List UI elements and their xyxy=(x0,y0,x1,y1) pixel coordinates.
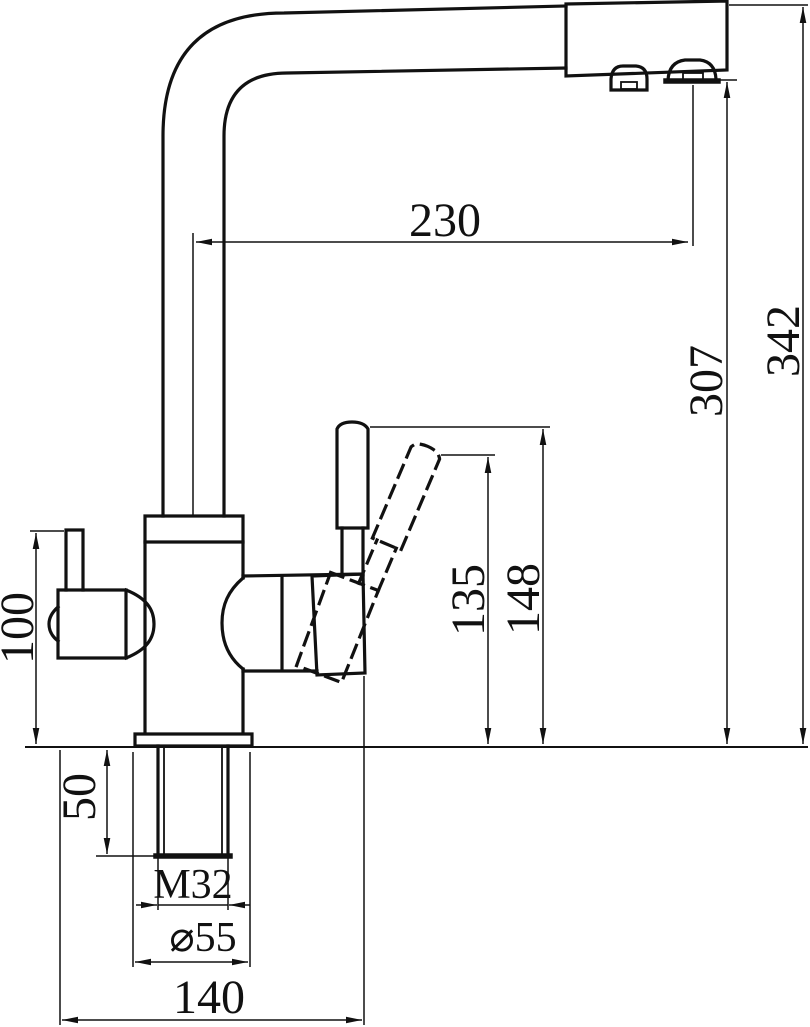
faucet-dimension-drawing: 230 342 307 148 135 100 50 M3 xyxy=(0,0,810,1027)
dim-spout-reach: 230 xyxy=(193,85,693,516)
side-outlet-pipe xyxy=(66,530,83,590)
dim-base-diameter: ⌀55 xyxy=(133,752,250,967)
dim-label-342: 342 xyxy=(757,305,810,377)
dim-label-50: 50 xyxy=(53,773,106,821)
technical-drawing-canvas: 230 342 307 148 135 100 50 M3 xyxy=(0,0,810,1027)
handle-socket xyxy=(243,574,363,671)
dim-spout-outlet-height: 307 xyxy=(680,80,737,744)
faucet-outline xyxy=(25,1,808,856)
dim-label-135: 135 xyxy=(442,564,495,636)
dim-label-m32: M32 xyxy=(153,862,232,908)
dim-shank-length: 50 xyxy=(53,750,156,856)
threaded-shank xyxy=(156,746,230,856)
body-collar xyxy=(145,516,243,542)
dim-base-span: 140 xyxy=(60,676,364,1025)
dim-label-148: 148 xyxy=(497,563,550,635)
spout-head xyxy=(566,1,727,76)
base-flange xyxy=(135,734,252,746)
dim-label-140: 140 xyxy=(173,971,245,1024)
dim-handle-tilted-height: 135 xyxy=(441,455,495,744)
dim-thread: M32 xyxy=(136,858,250,910)
dim-label-100: 100 xyxy=(0,592,44,664)
dim-label-307: 307 xyxy=(680,345,733,417)
dim-label-230: 230 xyxy=(409,194,481,247)
dim-label-d55: ⌀55 xyxy=(169,915,236,961)
faucet-body xyxy=(126,542,243,733)
side-outlet xyxy=(49,590,126,658)
aerator-left xyxy=(611,66,647,90)
spout-pipe-inner xyxy=(224,68,566,516)
dim-overall-height: 342 xyxy=(729,5,810,744)
